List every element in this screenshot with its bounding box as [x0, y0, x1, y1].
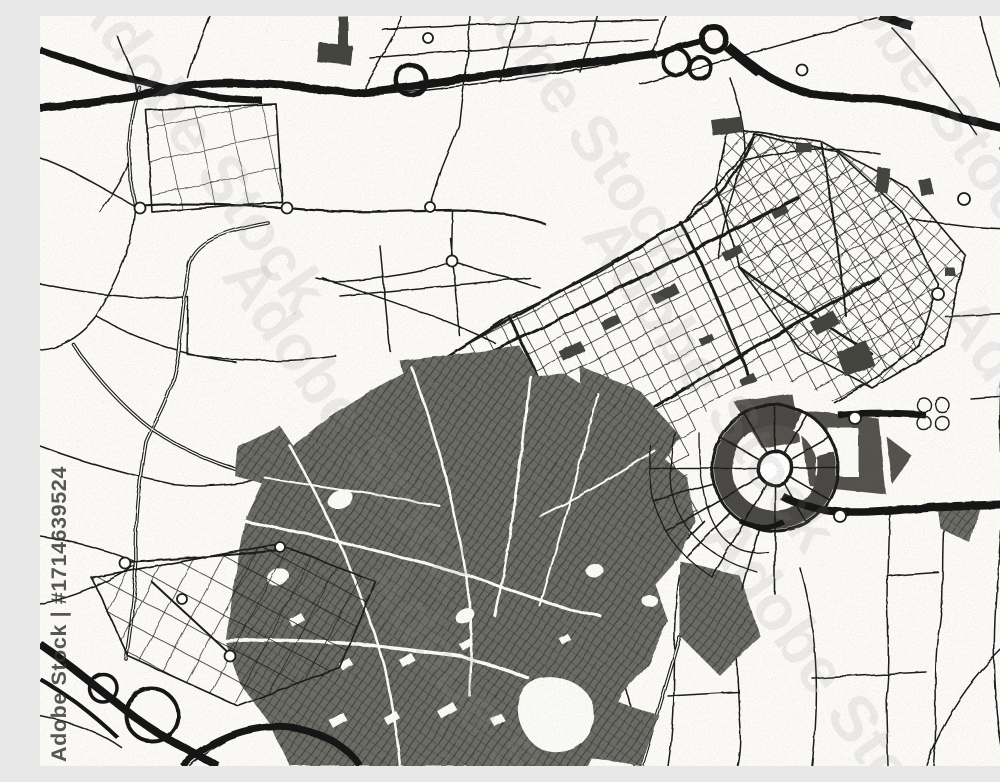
city-map-canvas: Adobe Stock Adobe Stock Adobe Stock Adob…	[40, 16, 1000, 766]
stock-map-image: Adobe Stock Adobe Stock Adobe Stock Adob…	[40, 16, 1000, 766]
watermark-id-label: Adobe Stock | #1714639524	[47, 466, 71, 762]
